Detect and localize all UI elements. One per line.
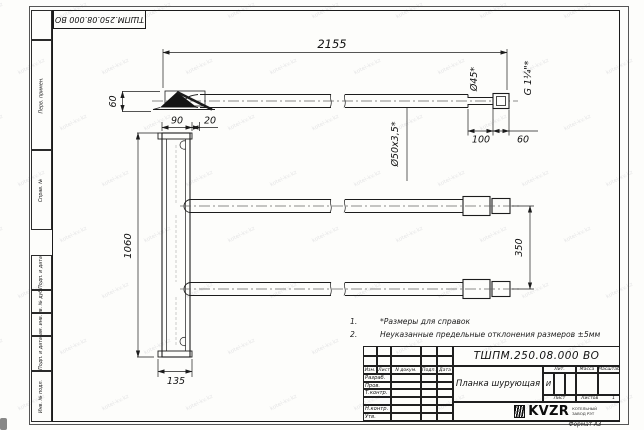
note-1: 1.*Размеры для справок <box>350 317 470 326</box>
tb-header-izm: Изм. <box>365 368 376 373</box>
tb-sheet-label: Лист <box>554 396 566 401</box>
company-line2: ЗАВОД РЭТ <box>572 412 597 417</box>
dim-plate-height: 1060 <box>123 233 134 258</box>
coil-icon <box>514 405 525 418</box>
tb-row-utv: Утв. <box>365 414 376 420</box>
company-name: KVZR <box>528 404 569 419</box>
dim-100: 100 <box>472 135 490 146</box>
dim-20: 20 <box>204 116 216 127</box>
top-view <box>152 91 518 110</box>
format-label: Формат А3 <box>545 422 625 428</box>
tb-sheets-label: Листов <box>581 396 598 401</box>
tb-scale-header: Масштаб <box>598 367 620 372</box>
company-logo: KVZR КОТЕЛЬНЫЙ ЗАВОД РЭТ <box>514 404 597 419</box>
tb-row-nkontr: Н.контр. <box>365 406 388 412</box>
scan-artifact <box>0 418 7 430</box>
note-2: 2.Неуказанные предельные отклонения разм… <box>350 330 600 339</box>
dim-pipe-od: Ø45* <box>469 67 480 93</box>
doc-number: ТШПМ.250.08.000 ВО <box>474 350 600 362</box>
tb-lit-value: И <box>546 380 551 388</box>
tb-lit-header: Лит. <box>554 367 565 372</box>
tb-row-prov: Пров. <box>365 383 380 389</box>
dim-thread: G 1¼"* <box>523 60 534 95</box>
dim-overall: 2155 <box>317 37 346 51</box>
dim-foot: 135 <box>167 376 185 387</box>
tb-header-podp: Подп. <box>422 368 436 373</box>
tb-header-list: Лист <box>378 368 390 373</box>
tb-mass-header: Масса <box>580 367 595 372</box>
dim-tip-offset: 60 <box>108 95 119 107</box>
drawing-sheet: kotel-kv.kzkotel-kv.kzkotel-kv.kzkotel-k… <box>0 0 644 430</box>
tb-row-razrab: Разраб. <box>365 375 385 381</box>
dim-pipe-spec: Ø50х3,5* <box>390 121 401 167</box>
tb-header-ndokum: N докум. <box>395 368 416 373</box>
tb-header-data: Дата <box>439 368 451 373</box>
dim-90: 90 <box>171 116 183 127</box>
dim-60: 60 <box>517 135 529 146</box>
dim-spacing: 350 <box>514 238 525 256</box>
part-name: Планка шурующая <box>456 379 540 389</box>
tb-row-tkontr: Т.контр. <box>365 390 387 396</box>
tb-sheets-value: 1 <box>612 396 615 401</box>
